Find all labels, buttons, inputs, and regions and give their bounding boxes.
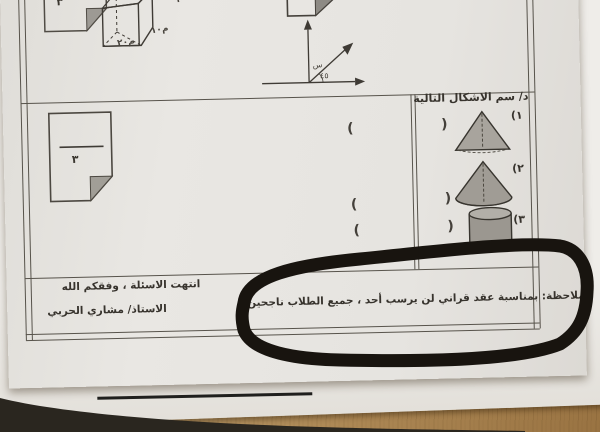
desk-edge-shadow (0, 0, 600, 432)
photo-of-exam-paper: ٣ ٢٠ م١٠ م٢٠ (0, 0, 600, 432)
